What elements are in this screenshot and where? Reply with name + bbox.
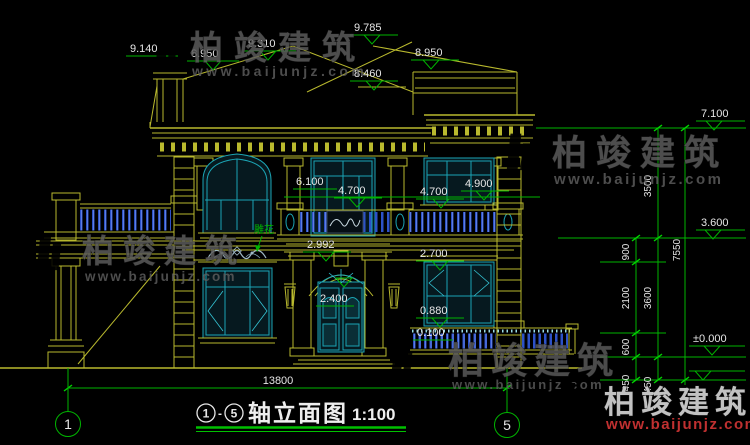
level-text: 7.100 [701,108,729,120]
title-axis-end: 5 [231,407,238,421]
watermark-brand: 柏竣建筑 [190,29,366,66]
axis-bubble-5: 5 [495,413,520,438]
level-text: 3.600 [701,217,729,229]
level-text: 0.100 [417,327,445,339]
watermark-brand: 柏竣建筑 [604,385,750,420]
drawing-title: 轴立面图 [248,400,348,426]
watermark-brand: 柏竣建筑 [82,233,246,269]
title-separator: - [218,407,222,421]
watermark-url: www.baijunjz.com [605,416,750,433]
axis-5-label: 5 [503,417,511,433]
watermark-url: www.baijunjz.com [553,171,723,188]
cad-canvas: #logo-gray .lg-sw{stroke:#5a5a5a;} #logo… [0,0,750,445]
level-text: 2.992 [307,239,335,251]
watermark-left: 柏竣建筑 www.baijunjz.com [14,233,246,285]
dim-900: 900 [621,243,632,260]
dim-600: 600 [621,338,632,355]
chimney [153,73,187,122]
title-block: 1 - 5 轴立面图 1:100 [196,400,406,432]
dim-13800: 13800 [263,375,294,387]
level-text: 6.100 [296,176,324,188]
level-text: 0.880 [420,305,448,317]
level-text: 9.140 [130,43,158,55]
axis-1-label: 1 [64,416,72,432]
roof-parapet-block [413,72,517,115]
watermark-top: 柏竣建筑 www.baijunjz.com [136,29,367,79]
watermark-corner: 柏竣建筑 www.baijunjz.com [540,383,750,433]
dim-3600: 3600 [643,286,654,309]
elevation-drawing: #logo-gray .lg-sw{stroke:#5a5a5a;} #logo… [0,0,750,445]
carving-label: 雕花 [254,223,274,236]
wall-lamp-left [284,284,296,308]
watermark-url: www.baijunjz.com [84,269,237,284]
watermark-brand: 柏竣建筑 [448,340,620,381]
level-text: ±0.000 [693,333,727,345]
level-text: 4.900 [465,178,493,190]
level-8950-right: 8.950 [411,47,459,69]
axis-bubble-1: 1 [56,412,81,437]
watermark-brand: 柏竣建筑 [552,133,728,173]
carport-column [48,258,84,368]
level-text: 8.950 [415,47,443,59]
wall-lamp-right [388,284,400,308]
watermark-url: www.baijunjz.com [191,63,367,79]
level-text: 4.700 [338,185,366,197]
title-axis-start: 1 [203,407,210,421]
dim-2100: 2100 [621,286,632,309]
watermark-url: www.baijunjz.com [451,377,604,392]
level-7100: 7.100 [696,108,745,130]
level-3600: 3.600 [696,217,745,239]
entrance-door [318,269,364,352]
level-text: 2.700 [420,248,448,260]
entrance-steps [293,356,395,364]
cornice-left [150,122,433,156]
level-text: 4.700 [420,186,448,198]
watermark-bottom: 柏竣建筑 www.baijunjz.com [372,340,620,392]
level-text: 2.400 [320,293,348,305]
drawing-scale: 1:100 [352,405,395,424]
dim-7550: 7550 [672,238,683,261]
